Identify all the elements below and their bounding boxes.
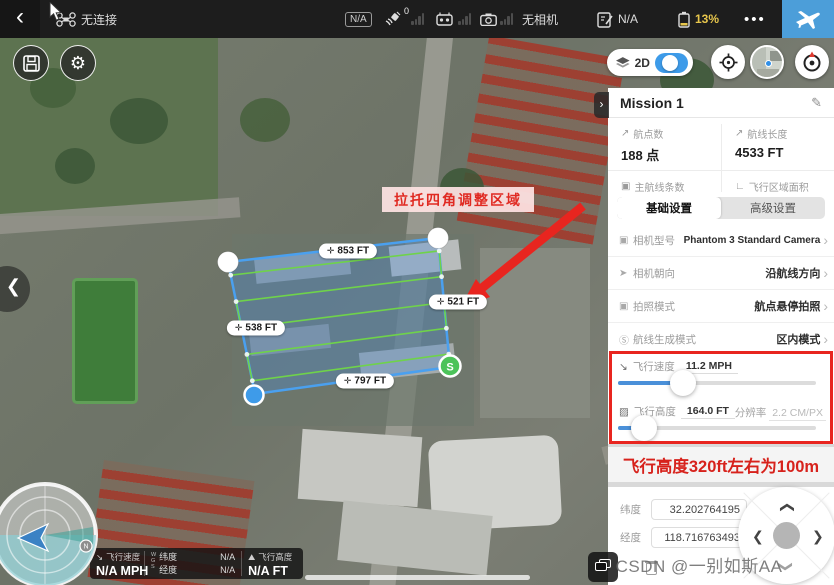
rc-signal-bars [458,13,471,25]
route-length-icon: ↗ [735,128,743,139]
edge-length-left: ✛538 FT [227,321,285,336]
map-building [480,248,590,418]
map-trees [110,98,168,144]
altitude-icon: ⛰︎ [248,552,255,563]
flight-sliders: ↘ 飞行速度 11.2 MPH ▨ 飞行高度 164.0 FT 分辨率 2.2 … [608,352,834,444]
chevron-right-icon: › [823,298,828,314]
map-trees [240,98,290,142]
locate-button[interactable] [711,45,745,79]
longitude-input[interactable] [651,527,747,548]
setting-camera-model[interactable]: ▣ 相机型号 Phantom 3 Standard Camera › [608,224,834,257]
chevron-left-icon: ❮ [6,276,21,297]
edge-length-bottom: ✛797 FT [336,374,394,389]
route-mode-icon: Ⓢ [619,332,633,347]
remote-controller-icon [436,12,453,26]
chevron-right-icon: › [823,331,828,347]
camera-icon [480,13,497,26]
takeoff-button[interactable] [782,0,834,38]
map-building [298,429,423,507]
nudge-center-button[interactable] [773,522,800,549]
save-mission-button[interactable] [13,45,49,81]
latitude-row: 纬度 [620,499,747,520]
checklist-status: N/A [618,12,638,26]
edge-length-right: ✛521 FT [429,295,487,310]
camera-signal-bars [500,13,513,25]
plus-icon: ✛ [327,246,335,256]
altitude-slider-track[interactable] [618,426,816,430]
connection-status: 无连接 [81,11,117,28]
edge-length-top: ✛853 FT [319,244,377,259]
map-stadium [72,278,138,404]
mission-settings-button[interactable]: ⚙︎ [60,45,96,81]
plus-icon: ✛ [437,297,445,307]
battery-percent: 13% [695,12,719,26]
setting-camera-heading[interactable]: ➤ 相机朝向 沿航线方向 › [608,257,834,290]
telemetry-altitude: ⛰︎飞行高度 N/A FT [242,548,303,579]
edit-mission-icon[interactable]: ✎ [811,95,822,111]
flight-mode-badge: N/A [345,12,372,27]
speed-slider-knob[interactable] [670,370,696,396]
photo-mode-icon: ▣ [619,301,633,312]
altitude-value[interactable]: 164.0 FT [681,405,735,419]
plus-icon: ✛ [344,376,352,386]
gps-count: 0 [404,6,409,16]
map-mode-label: 2D [635,56,650,70]
tab-basic-settings[interactable]: 基础设置 [617,197,721,219]
telemetry-coords: WGS 纬度N/A 经度N/A [145,548,241,579]
main-lines-icon: ▣ [621,181,630,192]
altitude-slider-knob[interactable] [631,415,657,441]
battery-icon [678,11,690,28]
mission-header: Mission 1 ✎ [608,88,834,118]
tab-advanced-settings[interactable]: 高级设置 [721,197,825,219]
setting-photo-mode[interactable]: ▣ 拍照模式 航点悬停拍照 › [608,290,834,323]
nudge-right-button[interactable]: ❯ [812,528,824,545]
back-button[interactable]: ‹ [0,0,40,38]
compass-reset-button[interactable] [795,45,829,79]
heading-arrow-icon: ➤ [619,268,633,279]
nudge-left-button[interactable]: ❮ [752,528,764,545]
mouse-cursor [49,2,63,22]
home-indicator[interactable] [305,575,530,580]
satellite-icon [384,11,402,27]
compass-north-label: N [83,544,88,551]
chevron-right-icon: › [823,265,828,281]
tutorial-annotation: 拉托四角调整区域 [382,187,534,212]
nudge-up-button[interactable]: ❯ [777,502,794,514]
divider [608,170,834,171]
stat-route-length: ↗航线长度 4533 FT [722,118,834,170]
collapse-panel-tab[interactable]: › [594,92,609,118]
mission-title: Mission 1 [620,95,684,111]
checklist-icon [596,11,613,28]
longitude-row: 经度 [620,527,747,548]
airplane-icon [795,8,821,30]
map-trees [55,148,95,184]
plus-icon: ✛ [235,323,243,333]
map-red-roofs [457,38,626,245]
app-screen: S ✛853 FT ✛521 FT ✛538 FT ✛797 FT 拉托四角调整… [0,0,834,585]
watermark: CSDN @一别如斯AA [566,552,832,577]
speed-slider-track[interactable] [618,381,816,385]
minimap-texture [770,51,782,61]
compass-icon [801,51,823,73]
minimap-button[interactable] [750,45,784,79]
altitude-note: 飞行高度320ft左右为100m [608,447,834,482]
map-mode-pill[interactable]: 2D [607,49,693,76]
speed-icon: ↘ [619,361,628,373]
more-menu-button[interactable]: ••• [744,11,766,28]
layers-icon [616,57,630,69]
waypoint-icon: ↗ [621,128,629,139]
gear-icon: ⚙︎ [70,53,86,74]
stat-waypoints: ↗航点数 188 点 [608,118,721,170]
gps-signal-bars [411,13,424,25]
minimap-texture [757,69,779,77]
camera-status: 无相机 [522,11,558,28]
chevron-right-icon: › [823,232,828,248]
altitude-icon: ▨ [619,406,629,418]
attitude-compass[interactable]: N [0,478,100,585]
crosshair-icon [719,53,738,72]
minimap-location-dot [765,60,772,67]
camera-icon: ▣ [619,235,633,246]
top-status-bar: ‹ 无连接 N/A 0 无相机 N/A 13% ••• [0,0,834,38]
2d-toggle[interactable] [655,53,688,73]
latitude-input[interactable] [651,499,747,520]
settings-tabs: 基础设置 高级设置 [608,192,834,224]
settings-list: ▣ 相机型号 Phantom 3 Standard Camera › ➤ 相机朝… [608,224,834,357]
telemetry-bar: ↘飞行速度 N/A MPH WGS 纬度N/A 经度N/A ⛰︎飞行高度 N/A… [90,548,303,579]
save-icon [23,55,40,72]
resolution-value: 2.2 CM/PX [769,407,826,421]
toggle-knob [662,55,678,71]
area-ruler-icon: ∟ [735,181,745,192]
